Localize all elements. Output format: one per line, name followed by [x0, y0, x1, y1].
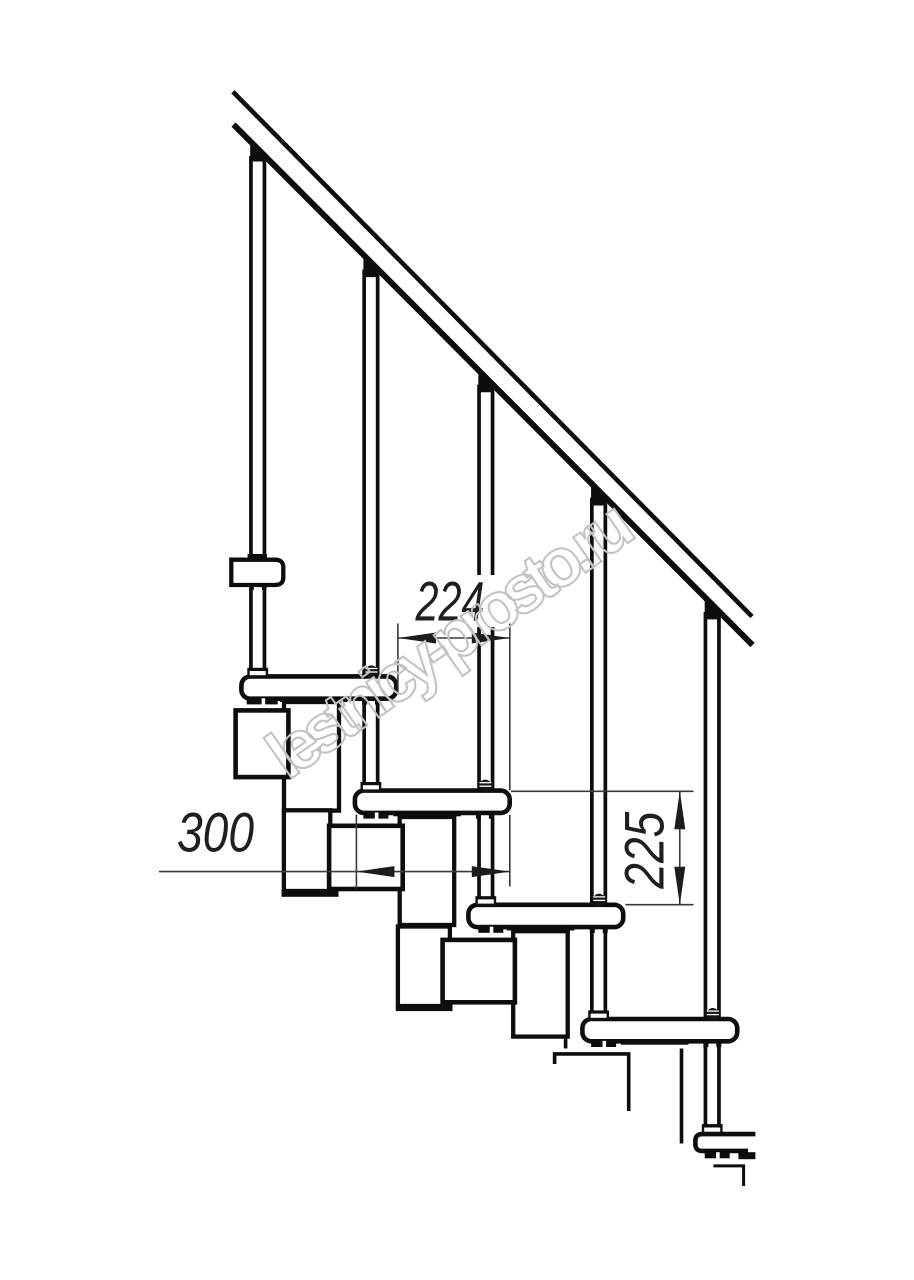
svg-text:225: 225 — [613, 811, 676, 890]
svg-text:300: 300 — [177, 801, 254, 864]
